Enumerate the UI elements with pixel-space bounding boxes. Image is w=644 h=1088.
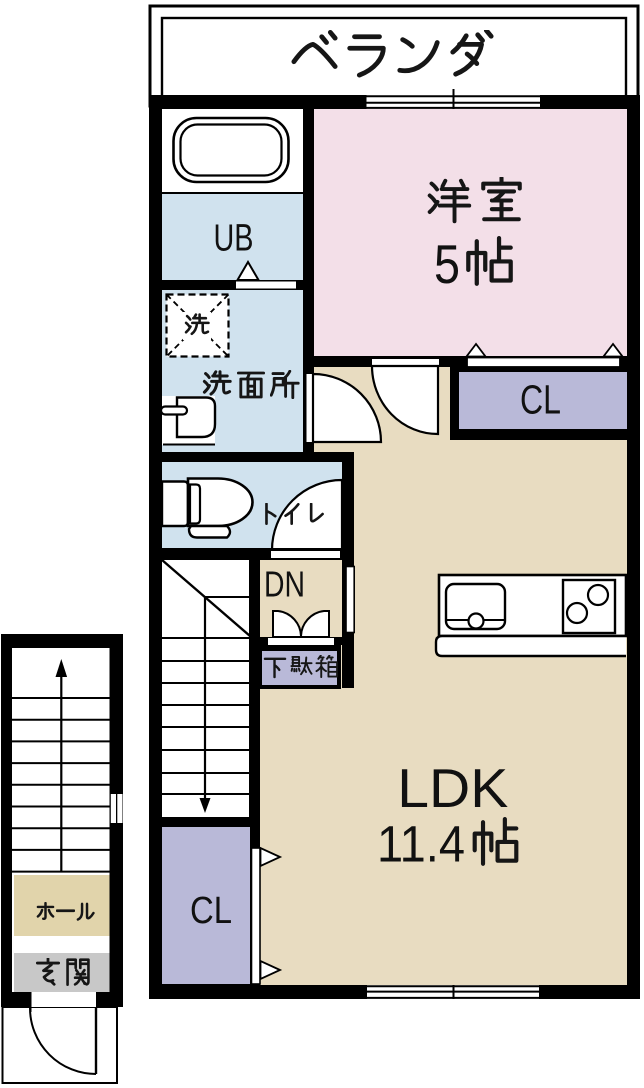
svg-text:CL: CL xyxy=(190,890,232,932)
svg-text:CL: CL xyxy=(520,377,561,423)
svg-text:DN: DN xyxy=(264,564,305,605)
svg-text:UB: UB xyxy=(214,218,254,260)
svg-text:11.4: 11.4 xyxy=(377,816,465,873)
svg-text:LDK: LDK xyxy=(397,758,508,819)
svg-text:5: 5 xyxy=(434,233,460,295)
